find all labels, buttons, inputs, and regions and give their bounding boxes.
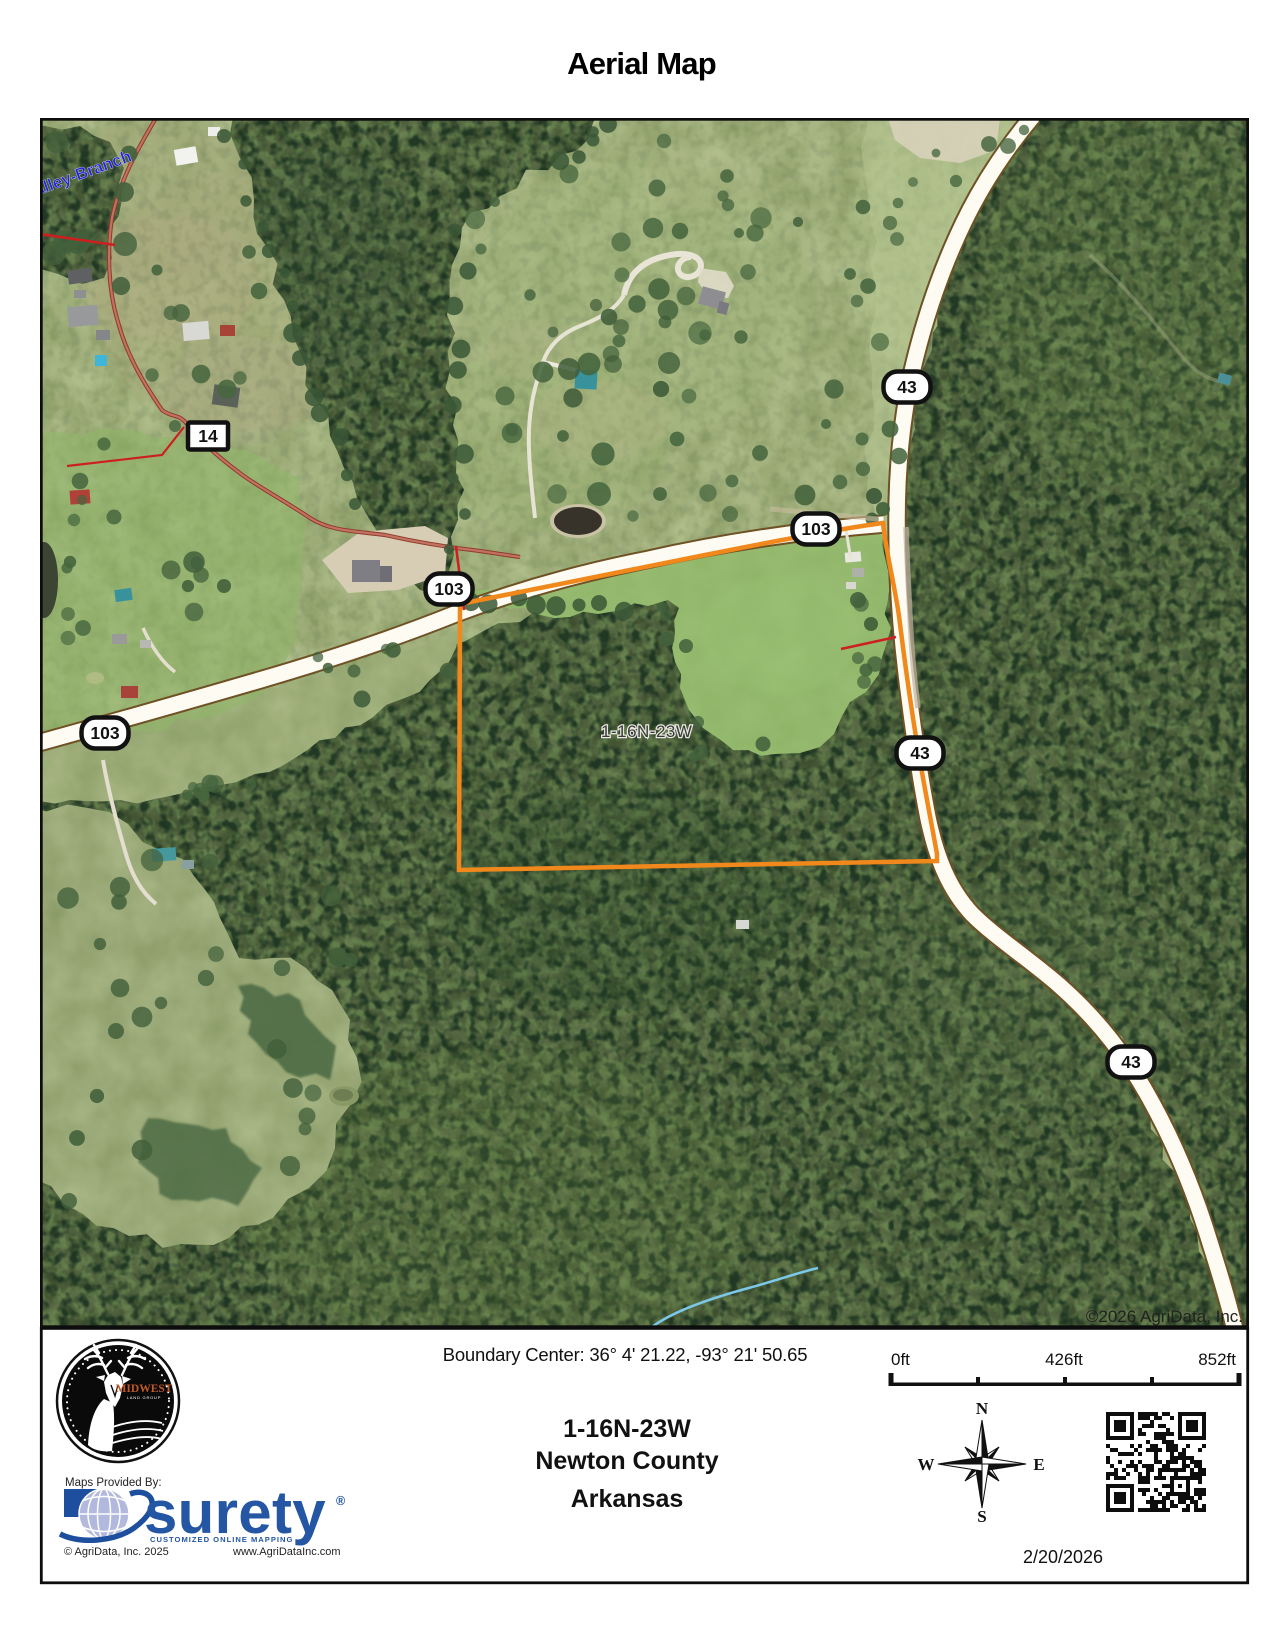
svg-text:E: E: [1033, 1455, 1044, 1474]
svg-text:Arkansas: Arkansas: [571, 1485, 684, 1513]
svg-text:N: N: [976, 1399, 989, 1418]
svg-text:®: ®: [336, 1494, 346, 1508]
svg-text:W: W: [918, 1455, 935, 1474]
svg-text:CUSTOMIZED ONLINE MAPPING: CUSTOMIZED ONLINE MAPPING: [150, 1535, 293, 1544]
svg-text:Newton County: Newton County: [535, 1447, 718, 1475]
svg-text:852ft: 852ft: [1198, 1350, 1236, 1369]
svg-text:Maps Provided By:: Maps Provided By:: [65, 1477, 162, 1489]
svg-text:© AgriData, Inc. 2025: © AgriData, Inc. 2025: [64, 1546, 169, 1558]
svg-text:S: S: [977, 1507, 986, 1526]
svg-text:www.AgriDataInc.com: www.AgriDataInc.com: [232, 1546, 341, 1558]
svg-text:426ft: 426ft: [1045, 1350, 1083, 1369]
svg-text:1-16N-23W: 1-16N-23W: [563, 1415, 691, 1443]
svg-text:Boundary Center: 36° 4' 21.22,: Boundary Center: 36° 4' 21.22, -93° 21' …: [443, 1344, 808, 1365]
svg-text:2/20/2026: 2/20/2026: [1023, 1547, 1103, 1567]
svg-text:LAND GROUP: LAND GROUP: [127, 1395, 161, 1400]
svg-text:MIDWEST: MIDWEST: [116, 1383, 173, 1395]
svg-text:0ft: 0ft: [891, 1350, 910, 1369]
